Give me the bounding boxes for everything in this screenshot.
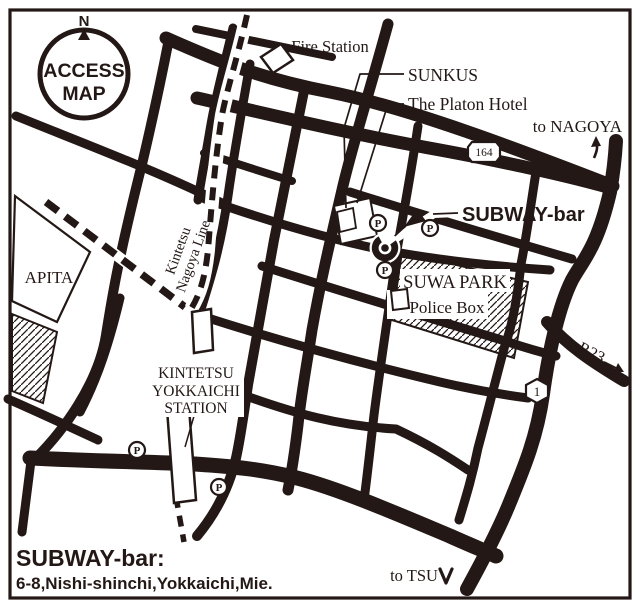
subway-bar-location-marker	[370, 233, 401, 264]
svg-text:1: 1	[534, 384, 541, 399]
svg-text:P: P	[216, 482, 223, 494]
footer-address: 6-8,Nishi-shinchi,Yokkaichi,Mie.	[16, 574, 273, 593]
label-police-box: Police Box	[409, 298, 485, 317]
badge-route-164: 164	[468, 142, 500, 162]
access-map: P P P P P 164 1 Fire Station SUNKUS The …	[0, 0, 640, 608]
svg-text:MAP: MAP	[62, 83, 105, 105]
parking-icon: P	[422, 220, 438, 236]
north-indicator: N	[79, 13, 90, 30]
label-apita: APITA	[25, 268, 74, 287]
label-to-nagoya: to NAGOYA	[533, 117, 623, 136]
label-to-tsu: to TSU	[390, 566, 438, 585]
building-sunkus	[337, 208, 356, 232]
arrow-to-tsu-icon	[440, 569, 452, 583]
footer-title: SUBWAY-bar:	[16, 545, 165, 571]
svg-text:ACCESS: ACCESS	[43, 60, 124, 82]
label-platon-hotel: The Platon Hotel	[408, 94, 528, 114]
svg-text:STATION: STATION	[164, 400, 227, 417]
svg-text:164: 164	[475, 147, 493, 159]
parking-icon: P	[370, 215, 386, 231]
area-apita	[12, 196, 90, 322]
map-canvas: P P P P P 164 1 Fire Station SUNKUS The …	[0, 0, 640, 608]
label-suwa-park: SUWA PARK	[403, 273, 507, 293]
svg-text:YOKKAICHI: YOKKAICHI	[152, 383, 240, 400]
label-subway-bar: SUBWAY-bar	[462, 204, 585, 226]
label-sunkus: SUNKUS	[408, 65, 478, 85]
arrow-to-nagoya-icon	[591, 136, 601, 158]
badge-route-1: 1	[526, 379, 548, 403]
parking-icon: P	[377, 262, 393, 278]
compass-icon: N ACCESS MAP	[40, 13, 128, 118]
parking-icon: P	[129, 442, 145, 458]
parking-icon: P	[211, 479, 227, 495]
label-kintetsu-yokkaichi-station: KINTETSU YOKKAICHI STATION	[150, 363, 244, 417]
svg-text:P: P	[375, 218, 382, 230]
label-fire-station: Fire Station	[291, 37, 368, 56]
svg-text:P: P	[427, 223, 434, 235]
svg-text:KINTETSU: KINTETSU	[158, 365, 234, 382]
svg-text:P: P	[134, 445, 141, 457]
svg-text:P: P	[382, 265, 389, 277]
area-hatched-block	[12, 314, 57, 403]
